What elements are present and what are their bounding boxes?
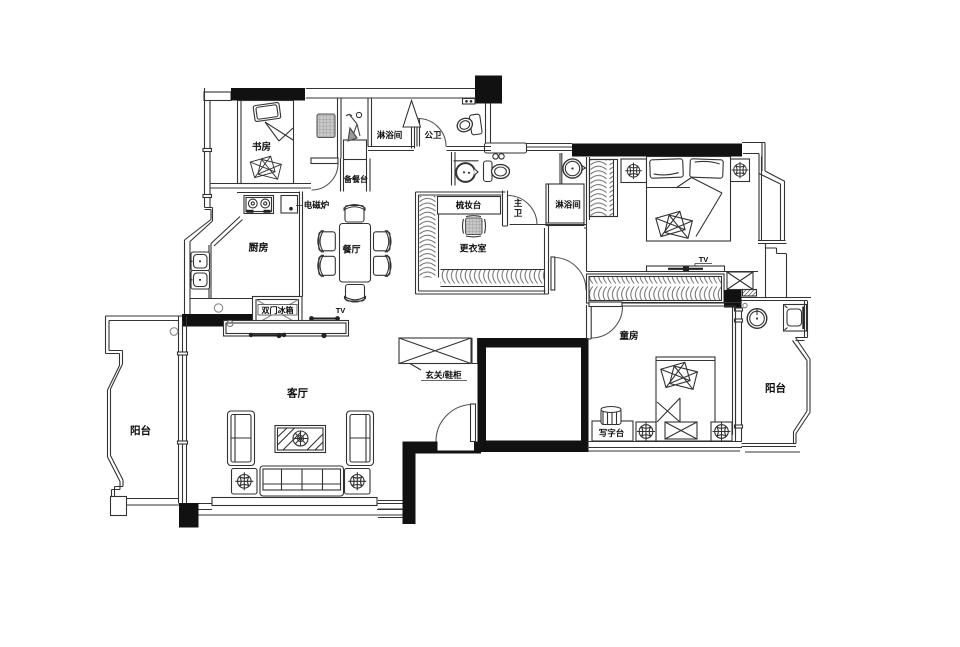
svg-text:备餐台: 备餐台 — [343, 174, 368, 184]
svg-text:客厅: 客厅 — [286, 387, 308, 400]
svg-text:写字台: 写字台 — [599, 428, 625, 438]
svg-text:玄关/鞋柜: 玄关/鞋柜 — [425, 370, 462, 380]
svg-text:淋浴间: 淋浴间 — [377, 130, 403, 140]
svg-text:公卫: 公卫 — [424, 130, 442, 140]
svg-text:童房: 童房 — [619, 330, 638, 342]
svg-text:主: 主 — [514, 198, 523, 208]
svg-text:阳台: 阳台 — [765, 382, 786, 395]
svg-text:电磁炉: 电磁炉 — [304, 200, 330, 210]
svg-text:更衣室: 更衣室 — [459, 243, 486, 254]
svg-text:梳妆台: 梳妆台 — [455, 200, 482, 210]
svg-text:双门冰箱: 双门冰箱 — [262, 305, 294, 315]
svg-text:阳台: 阳台 — [130, 424, 151, 437]
svg-text:厨房: 厨房 — [249, 241, 269, 254]
svg-text:TV: TV — [699, 255, 709, 264]
svg-text:淋浴间: 淋浴间 — [555, 200, 581, 210]
svg-text:书房: 书房 — [252, 141, 271, 153]
svg-text:餐厅: 餐厅 — [341, 244, 360, 255]
svg-text:卫: 卫 — [514, 208, 523, 218]
svg-text:TV: TV — [336, 306, 346, 315]
